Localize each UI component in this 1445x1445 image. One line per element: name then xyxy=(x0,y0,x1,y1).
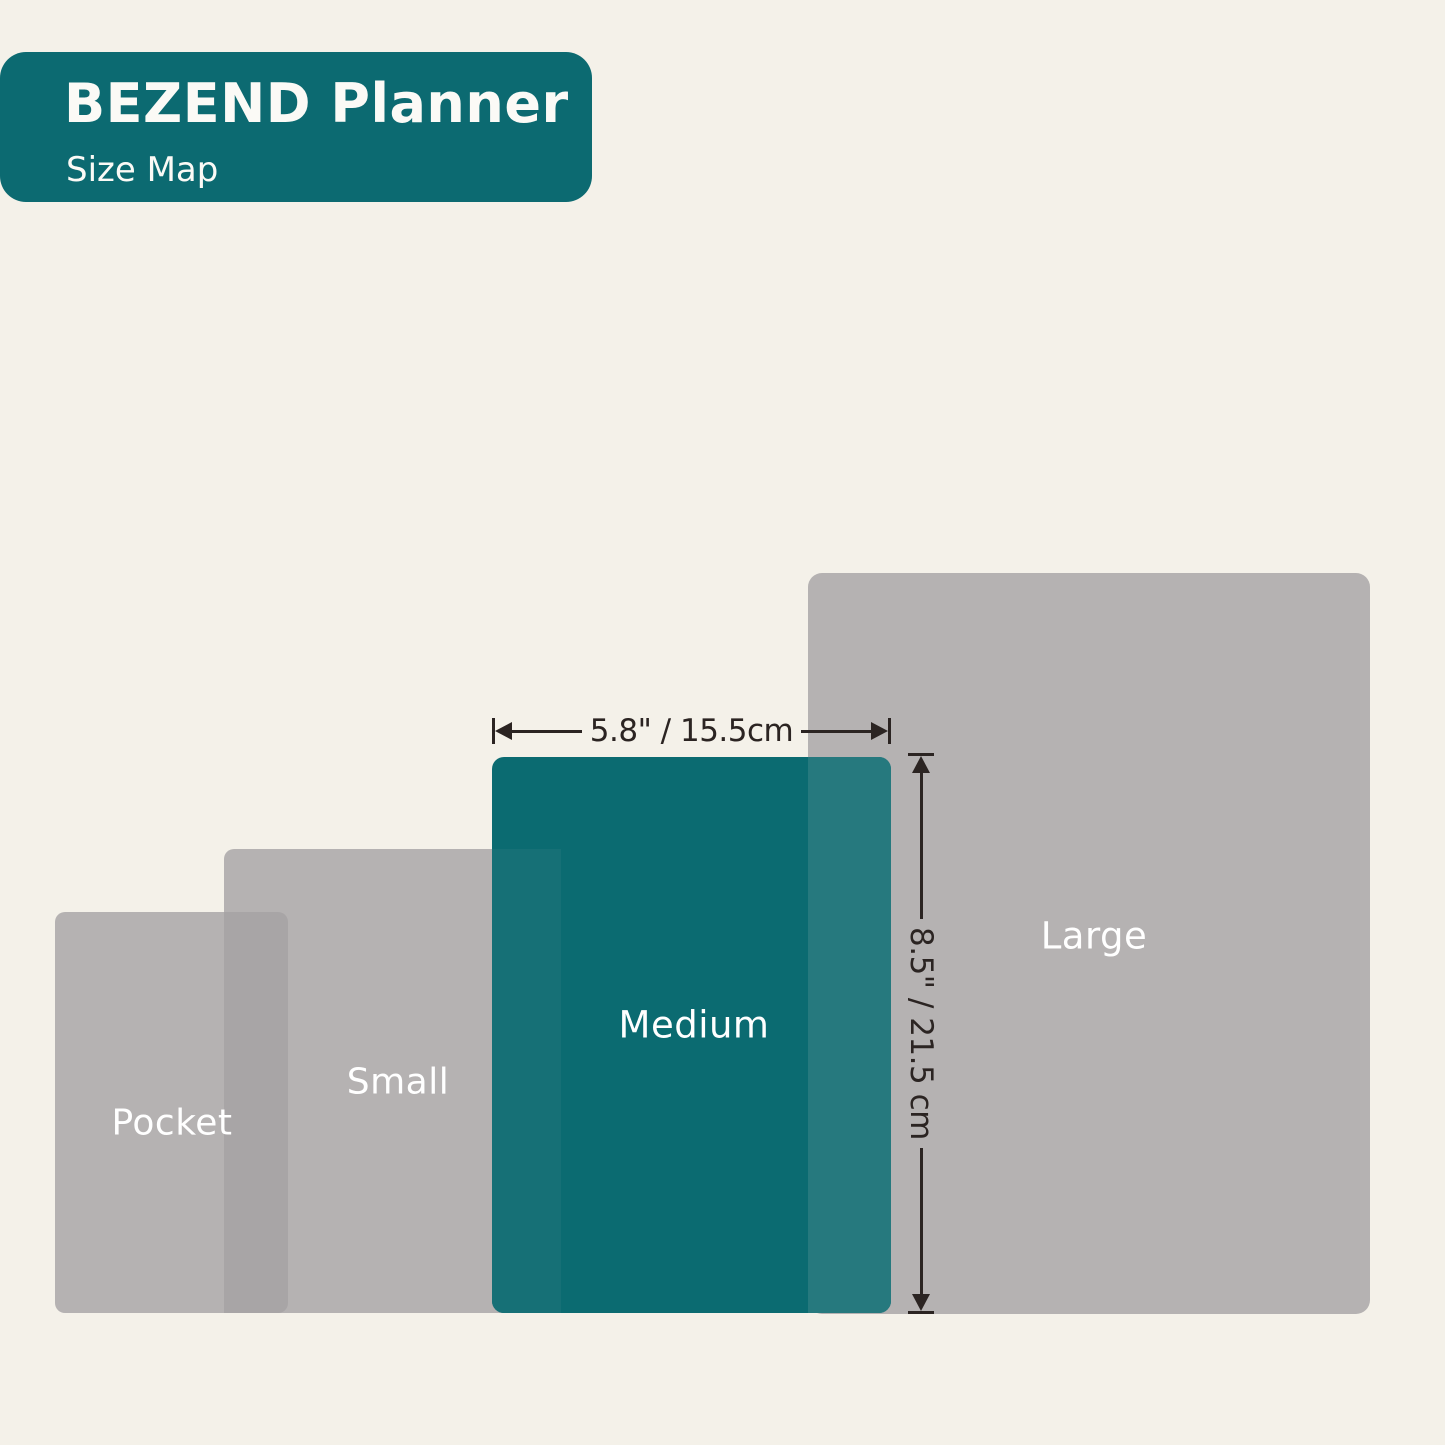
small-label: Small xyxy=(347,1062,449,1103)
small-medium-overlap xyxy=(492,849,561,1313)
size-map-canvas: BEZEND Planner Size Map Pocket Small Med… xyxy=(0,0,1445,1445)
width-dimension: 5.8" / 15.5cm xyxy=(492,711,891,751)
medium-large-overlap xyxy=(808,757,891,1313)
page-subtitle: Size Map xyxy=(66,150,218,190)
dimension-line xyxy=(920,773,923,919)
pocket-label: Pocket xyxy=(111,1103,232,1144)
arrow-up-icon xyxy=(912,756,930,773)
dimension-line xyxy=(801,730,871,733)
header-card: BEZEND Planner Size Map xyxy=(0,52,592,202)
arrow-right-icon xyxy=(871,722,888,740)
arrow-left-icon xyxy=(495,722,512,740)
dimension-tick xyxy=(908,1311,934,1314)
dimension-line xyxy=(920,1148,923,1294)
dimension-tick xyxy=(888,718,891,744)
large-label: Large xyxy=(1041,915,1148,958)
height-dimension-label: 8.5" / 21.5 cm xyxy=(903,919,939,1148)
dimension-line xyxy=(512,730,582,733)
page-title: BEZEND Planner xyxy=(64,72,569,135)
arrow-down-icon xyxy=(912,1294,930,1311)
height-dimension: 8.5" / 21.5 cm xyxy=(901,753,941,1314)
medium-label: Medium xyxy=(619,1004,770,1047)
width-dimension-label: 5.8" / 15.5cm xyxy=(582,713,801,749)
pocket-small-overlap xyxy=(224,912,288,1313)
